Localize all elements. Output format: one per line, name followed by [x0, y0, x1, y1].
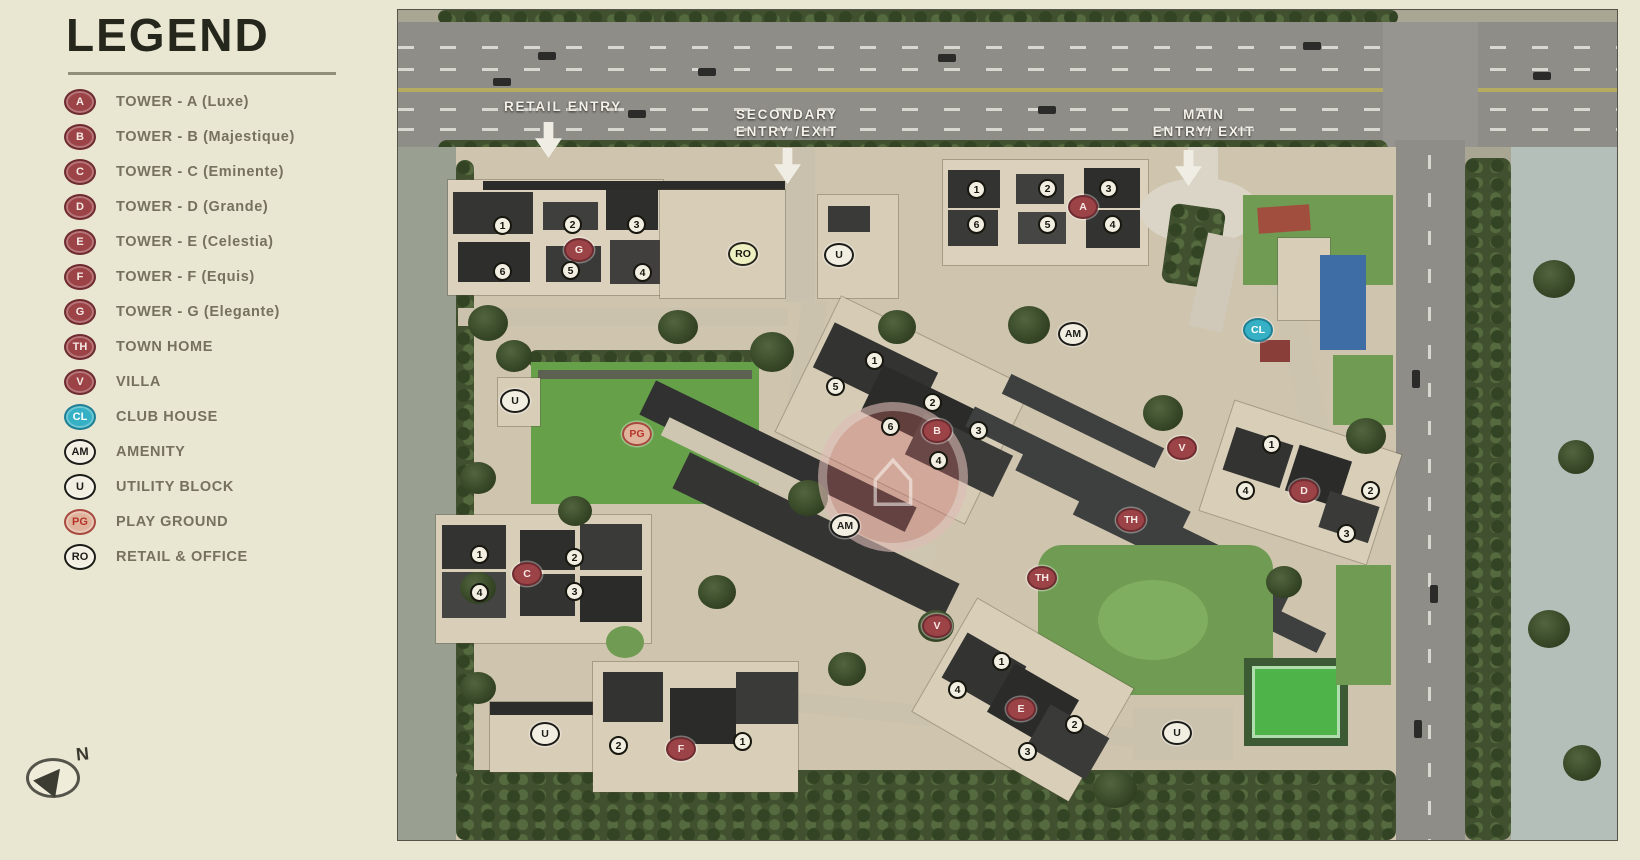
map-badge-f: F [666, 737, 696, 761]
legend-panel: LEGEND ATOWER - A (Luxe)BTOWER - B (Maje… [0, 0, 398, 860]
map-badge-cl: CL [1243, 318, 1273, 342]
compass-north-label: N [75, 743, 90, 765]
unit-number-circle: 2 [1361, 481, 1380, 500]
legend-item-th: THTOWN HOME [64, 329, 295, 364]
map-badge-u: U [1162, 721, 1192, 745]
legend-item-label: CLUB HOUSE [116, 409, 218, 425]
map-annotations-layer: GROUAAMCLUPGBAMVTHTHVDCUFEU1236541236541… [398, 10, 1617, 840]
unit-number-circle: 4 [1103, 215, 1122, 234]
legend-item-label: TOWER - B (Majestique) [116, 129, 295, 145]
unit-number-circle: 1 [992, 652, 1011, 671]
e-badge-icon: E [64, 229, 96, 255]
unit-number-circle: 6 [967, 215, 986, 234]
unit-number-circle: 2 [1038, 179, 1057, 198]
legend-item-label: TOWER - G (Elegante) [116, 304, 280, 320]
unit-number-circle: 1 [865, 351, 884, 370]
secondary-entry-label: SECONDARYENTRY /EXIT [736, 106, 838, 140]
unit-number-circle: 2 [565, 548, 584, 567]
secondary-entry-arrow-icon [774, 148, 801, 184]
unit-number-circle: 6 [493, 262, 512, 281]
unit-number-circle: 3 [1337, 524, 1356, 543]
legend-item-pg: PGPLAY GROUND [64, 504, 295, 539]
unit-number-circle: 4 [633, 263, 652, 282]
unit-number-circle: 4 [929, 451, 948, 470]
unit-number-circle: 1 [493, 216, 512, 235]
map-badge-e: E [1006, 697, 1036, 721]
legend-item-label: PLAY GROUND [116, 514, 228, 530]
legend-item-label: TOWN HOME [116, 339, 213, 355]
legend-divider [68, 72, 336, 75]
legend-item-b: BTOWER - B (Majestique) [64, 119, 295, 154]
legend-item-am: AMAMENITY [64, 434, 295, 469]
map-badge-am: AM [830, 514, 860, 538]
unit-number-circle: 3 [627, 215, 646, 234]
unit-number-circle: 3 [1099, 179, 1118, 198]
map-badge-am: AM [1058, 322, 1088, 346]
legend-item-a: ATOWER - A (Luxe) [64, 84, 295, 119]
v-badge-icon: V [64, 369, 96, 395]
map-badge-v: V [922, 614, 952, 638]
legend-item-ro: RORETAIL & OFFICE [64, 539, 295, 574]
unit-number-circle: 1 [1262, 435, 1281, 454]
legend-item-label: TOWER - C (Eminente) [116, 164, 284, 180]
a-badge-icon: A [64, 89, 96, 115]
unit-number-circle: 1 [733, 732, 752, 751]
legend-item-v: VVILLA [64, 364, 295, 399]
main-entry-label: MAINENTRY/ EXIT [1153, 106, 1256, 140]
unit-number-circle: 1 [470, 545, 489, 564]
unit-number-circle: 5 [826, 377, 845, 396]
ro-badge-icon: RO [64, 544, 96, 570]
map-badge-g: G [564, 238, 594, 262]
legend-item-label: UTILITY BLOCK [116, 479, 234, 495]
g-badge-icon: G [64, 299, 96, 325]
c-badge-icon: C [64, 159, 96, 185]
legend-item-label: VILLA [116, 374, 161, 390]
retail-entry-label: RETAIL ENTRY [504, 98, 622, 115]
legend-item-label: TOWER - E (Celestia) [116, 234, 274, 250]
legend-item-c: CTOWER - C (Eminente) [64, 154, 295, 189]
entry-label-line: RETAIL ENTRY [504, 98, 622, 115]
unit-number-circle: 6 [881, 417, 900, 436]
main-entry-arrow-icon [1175, 150, 1202, 186]
retail-entry-arrow-icon [535, 122, 562, 158]
legend-item-label: AMENITY [116, 444, 185, 460]
map-badge-u: U [500, 389, 530, 413]
unit-number-circle: 2 [609, 736, 628, 755]
th-badge-icon: TH [64, 334, 96, 360]
legend-item-d: DTOWER - D (Grande) [64, 189, 295, 224]
legend-item-label: RETAIL & OFFICE [116, 549, 248, 565]
pg-badge-icon: PG [64, 509, 96, 535]
unit-number-circle: 3 [969, 421, 988, 440]
compass: N [26, 744, 90, 800]
site-plan-map: ⌂ GROUAAMCLUPGBAMVTHTHVDCUFEU12365412365… [398, 10, 1617, 840]
map-badge-u: U [530, 722, 560, 746]
legend-item-label: TOWER - D (Grande) [116, 199, 268, 215]
unit-number-circle: 4 [948, 680, 967, 699]
d-badge-icon: D [64, 194, 96, 220]
map-badge-b: B [922, 419, 952, 443]
unit-number-circle: 2 [563, 215, 582, 234]
u-badge-icon: U [64, 474, 96, 500]
map-badge-ro: RO [728, 242, 758, 266]
cl-badge-icon: CL [64, 404, 96, 430]
map-badge-pg: PG [622, 422, 652, 446]
map-badge-d: D [1289, 479, 1319, 503]
legend-item-label: TOWER - A (Luxe) [116, 94, 249, 110]
entry-label-line: MAIN [1153, 106, 1256, 123]
entry-label-line: ENTRY /EXIT [736, 123, 838, 140]
legend-item-f: FTOWER - F (Equis) [64, 259, 295, 294]
entry-label-line: ENTRY/ EXIT [1153, 123, 1256, 140]
unit-number-circle: 1 [967, 180, 986, 199]
unit-number-circle: 4 [470, 583, 489, 602]
unit-number-circle: 4 [1236, 481, 1255, 500]
entry-label-line: SECONDARY [736, 106, 838, 123]
legend-item-g: GTOWER - G (Elegante) [64, 294, 295, 329]
map-badge-v: V [1167, 436, 1197, 460]
unit-number-circle: 3 [1018, 742, 1037, 761]
legend-item-cl: CLCLUB HOUSE [64, 399, 295, 434]
unit-number-circle: 3 [565, 582, 584, 601]
map-badge-c: C [512, 562, 542, 586]
am-badge-icon: AM [64, 439, 96, 465]
legend-title: LEGEND [66, 8, 270, 62]
legend-item-u: UUTILITY BLOCK [64, 469, 295, 504]
unit-number-circle: 2 [1065, 715, 1084, 734]
map-badge-th: TH [1027, 566, 1057, 590]
f-badge-icon: F [64, 264, 96, 290]
map-badge-u: U [824, 243, 854, 267]
b-badge-icon: B [64, 124, 96, 150]
legend-item-e: ETOWER - E (Celestia) [64, 224, 295, 259]
map-badge-th: TH [1116, 508, 1146, 532]
legend-items-list: ATOWER - A (Luxe)BTOWER - B (Majestique)… [64, 84, 295, 574]
map-badge-a: A [1068, 195, 1098, 219]
unit-number-circle: 5 [1038, 215, 1057, 234]
unit-number-circle: 5 [561, 261, 580, 280]
unit-number-circle: 2 [923, 393, 942, 412]
legend-item-label: TOWER - F (Equis) [116, 269, 255, 285]
